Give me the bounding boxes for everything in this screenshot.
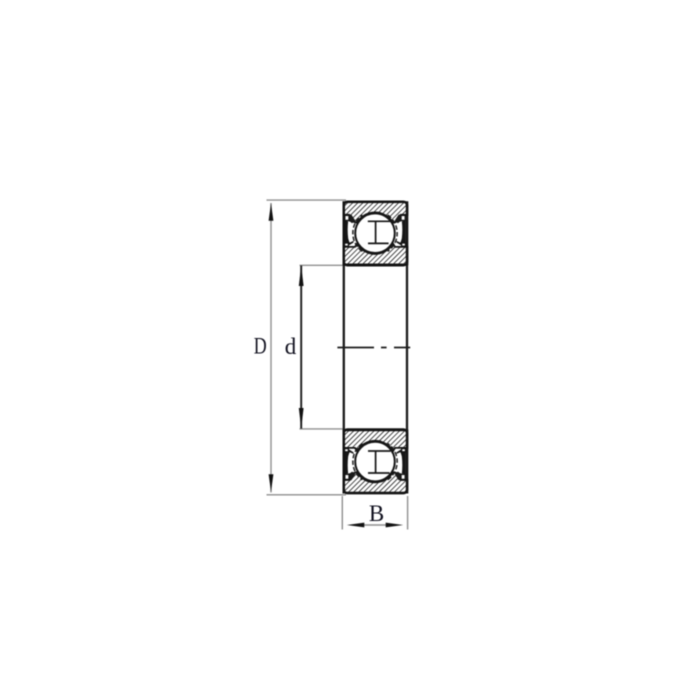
svg-text:D: D: [254, 335, 267, 360]
svg-text:B: B: [369, 501, 384, 526]
svg-text:d: d: [285, 334, 297, 359]
